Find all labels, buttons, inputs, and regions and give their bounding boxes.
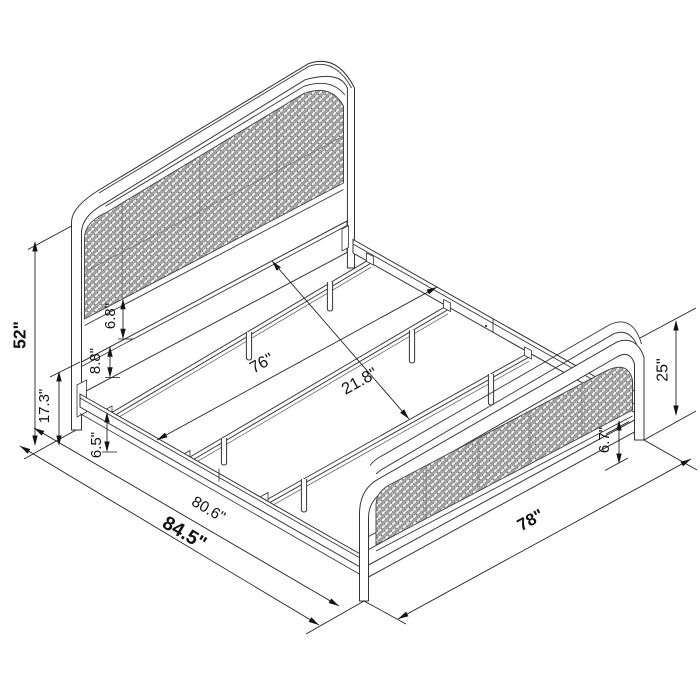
svg-text:17.3": 17.3" [36,389,53,424]
svg-text:6.5": 6.5" [88,432,105,458]
svg-text:52": 52" [10,321,30,349]
svg-text:6.7": 6.7" [596,427,613,453]
svg-text:8.8": 8.8" [87,348,104,374]
svg-text:6.8": 6.8" [102,303,119,329]
svg-text:25": 25" [655,358,672,381]
